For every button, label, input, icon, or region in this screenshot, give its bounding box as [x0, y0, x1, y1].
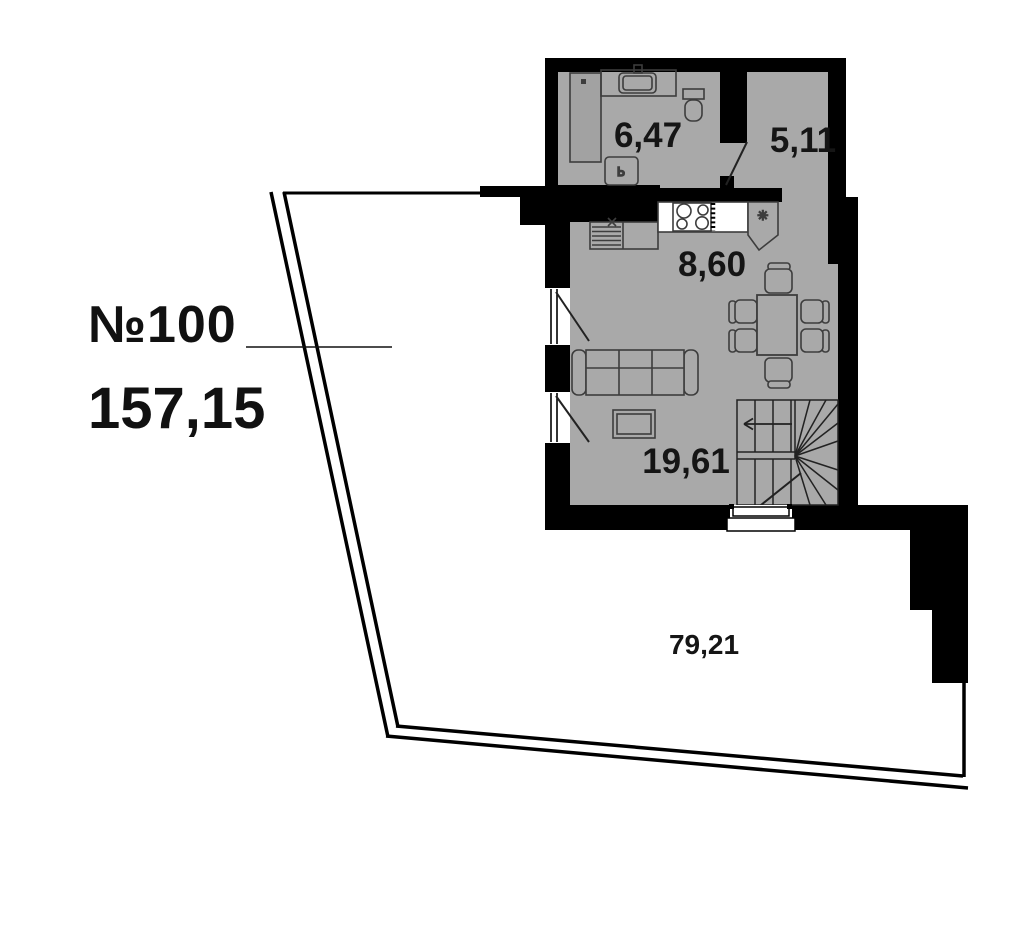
sofa	[572, 350, 698, 395]
dining-chair	[765, 358, 792, 388]
entrance-door	[727, 504, 795, 531]
boiler-icon: ✳	[758, 209, 769, 224]
total-area-label: 157,15	[88, 376, 265, 441]
hall-room-area-label: 5,11	[770, 121, 836, 160]
dining-chair	[765, 263, 792, 293]
kitchen-counter	[658, 202, 748, 232]
washing-machine-icon: Ь	[617, 165, 625, 179]
kitchen-area-label: 8,60	[678, 245, 746, 284]
dining-table	[757, 295, 797, 355]
living-room-area-label: 19,61	[642, 442, 730, 481]
dining-chair	[729, 300, 757, 323]
floor-plan-svg: Ь ✳	[0, 0, 1018, 926]
dining-chair	[801, 300, 829, 323]
apartment-number-label: №100	[88, 296, 237, 354]
terrace-area-label: 79,21	[669, 629, 739, 660]
bathroom-cabinet	[570, 73, 601, 162]
dining-chair	[729, 329, 757, 352]
dining-chair	[801, 329, 829, 352]
floor-plan: Ь ✳	[0, 0, 1018, 926]
bathroom-area-label: 6,47	[614, 116, 682, 155]
